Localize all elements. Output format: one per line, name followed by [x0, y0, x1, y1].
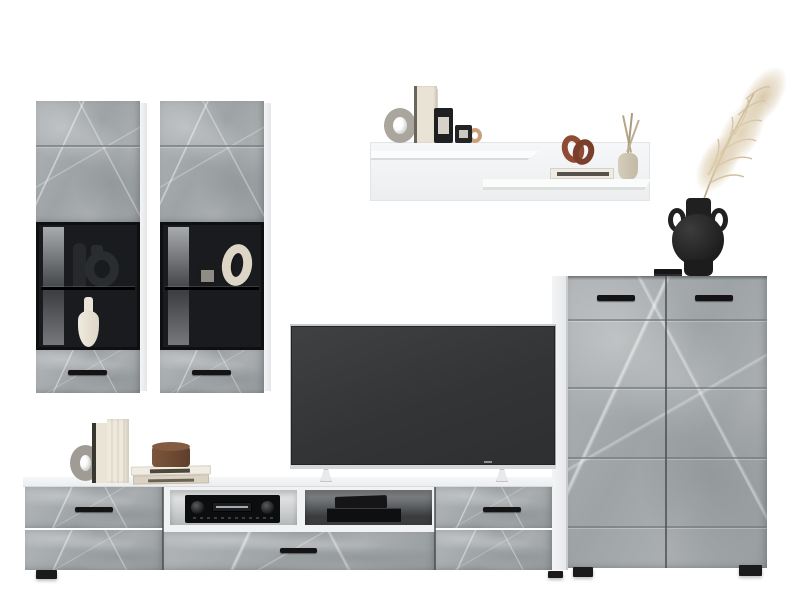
candle-label: [438, 117, 449, 134]
book-stack: [131, 465, 211, 485]
left-door-handle: [597, 295, 635, 301]
black-vase-base: [684, 260, 713, 276]
tv-screen: [290, 324, 556, 465]
wall-cabinet-right-side-panel: [264, 103, 271, 391]
black-candle-jar-short: [455, 125, 472, 143]
lying-book: [550, 168, 614, 179]
display-shelf: [41, 287, 135, 290]
book-spine-band: [148, 479, 194, 483]
tall-cabinet-foot-left: [573, 567, 593, 577]
panel-groove: [36, 145, 140, 147]
wall-shelf-lower-ledge: [483, 179, 651, 190]
door-seam: [665, 276, 667, 568]
tv-leg-left: [320, 469, 332, 482]
product-photo-scene: [0, 0, 798, 615]
media-player: [327, 508, 401, 522]
drawer-handle: [192, 370, 231, 375]
cabinet-top-edge: [568, 276, 767, 280]
wall-shelf-upper-ledge: [371, 151, 539, 160]
dark-jug-spout: [91, 245, 103, 255]
glass-reflection: [168, 227, 189, 345]
tall-cabinet-front: [568, 276, 767, 568]
dark-jug-sculpture: [85, 251, 119, 287]
drawer-handle: [280, 548, 317, 553]
tv-logo: [484, 461, 492, 463]
receiver-button-row: [193, 517, 273, 519]
stand-seam: [434, 487, 436, 570]
dark-bottle-vase: [73, 243, 86, 287]
av-receiver: [185, 495, 280, 523]
tv-stand-foot-left: [36, 570, 57, 579]
tv-stand-foot-right: [548, 571, 563, 578]
display-shelf: [165, 287, 259, 290]
tall-cabinet-foot-right: [739, 565, 762, 576]
wall-cabinet-left: [36, 101, 140, 393]
black-candle-jar-tall: [434, 108, 453, 143]
black-candle-jar: [198, 262, 217, 287]
receiver-display-text: [216, 506, 248, 508]
niche-media: [305, 490, 432, 525]
book-spine-band: [557, 172, 609, 176]
bud-vase: [618, 153, 638, 179]
wall-cabinet-left-side-panel: [140, 103, 147, 391]
stand-right-drawer: [435, 487, 552, 528]
receiver-knob-right: [261, 501, 274, 514]
tv-leg-right: [496, 469, 508, 482]
book-spine-band: [150, 469, 190, 474]
candle-label: [201, 270, 214, 282]
stand-left-lower-front: [25, 530, 163, 570]
wall-cabinet-right: [160, 101, 264, 393]
drawer-handle: [483, 507, 521, 512]
standing-book-dark-spine: [92, 423, 107, 483]
standing-book-cream: [107, 419, 129, 483]
glass-reflection: [43, 227, 64, 345]
receiver-knob-left: [191, 501, 204, 514]
brown-candle: [152, 446, 190, 467]
wall-shelf: [370, 142, 650, 201]
white-vase-body: [78, 311, 99, 347]
tv-bottom-trim: [290, 465, 556, 469]
stand-left-drawer: [25, 487, 163, 528]
drawer-handle: [68, 370, 107, 375]
stand-center-drawer: [163, 532, 435, 570]
panel-groove: [568, 526, 767, 528]
wall-cabinet-right-glass-display: [160, 222, 264, 350]
tv: [290, 324, 556, 480]
stacked-book-bottom: [133, 474, 209, 484]
stand-right-lower-front: [435, 530, 552, 570]
panel-groove: [160, 145, 264, 147]
stand-seam: [162, 487, 164, 570]
wall-cabinet-right-bottom-drawer: [160, 350, 264, 393]
brown-candle-top: [152, 442, 190, 451]
tv-stand-front: [25, 487, 552, 570]
wall-cabinet-left-glass-display: [36, 222, 140, 350]
cream-ring-sculpture: [219, 242, 255, 288]
candle-label: [459, 130, 468, 138]
panel-groove: [568, 387, 767, 389]
stand-niche-frame: [163, 487, 435, 532]
wall-cabinet-right-top-door: [160, 101, 264, 222]
panel-groove: [568, 319, 767, 321]
right-door-handle: [695, 295, 733, 301]
black-vase-body: [672, 214, 724, 266]
wall-cabinet-left-bottom-drawer: [36, 350, 140, 393]
gray-donut-bookend: [384, 108, 416, 143]
receiver-display: [212, 502, 252, 512]
panel-groove: [568, 457, 767, 459]
niche-receiver: [170, 490, 297, 525]
wall-cabinet-left-top-door: [36, 101, 140, 222]
drawer-handle: [75, 507, 113, 512]
